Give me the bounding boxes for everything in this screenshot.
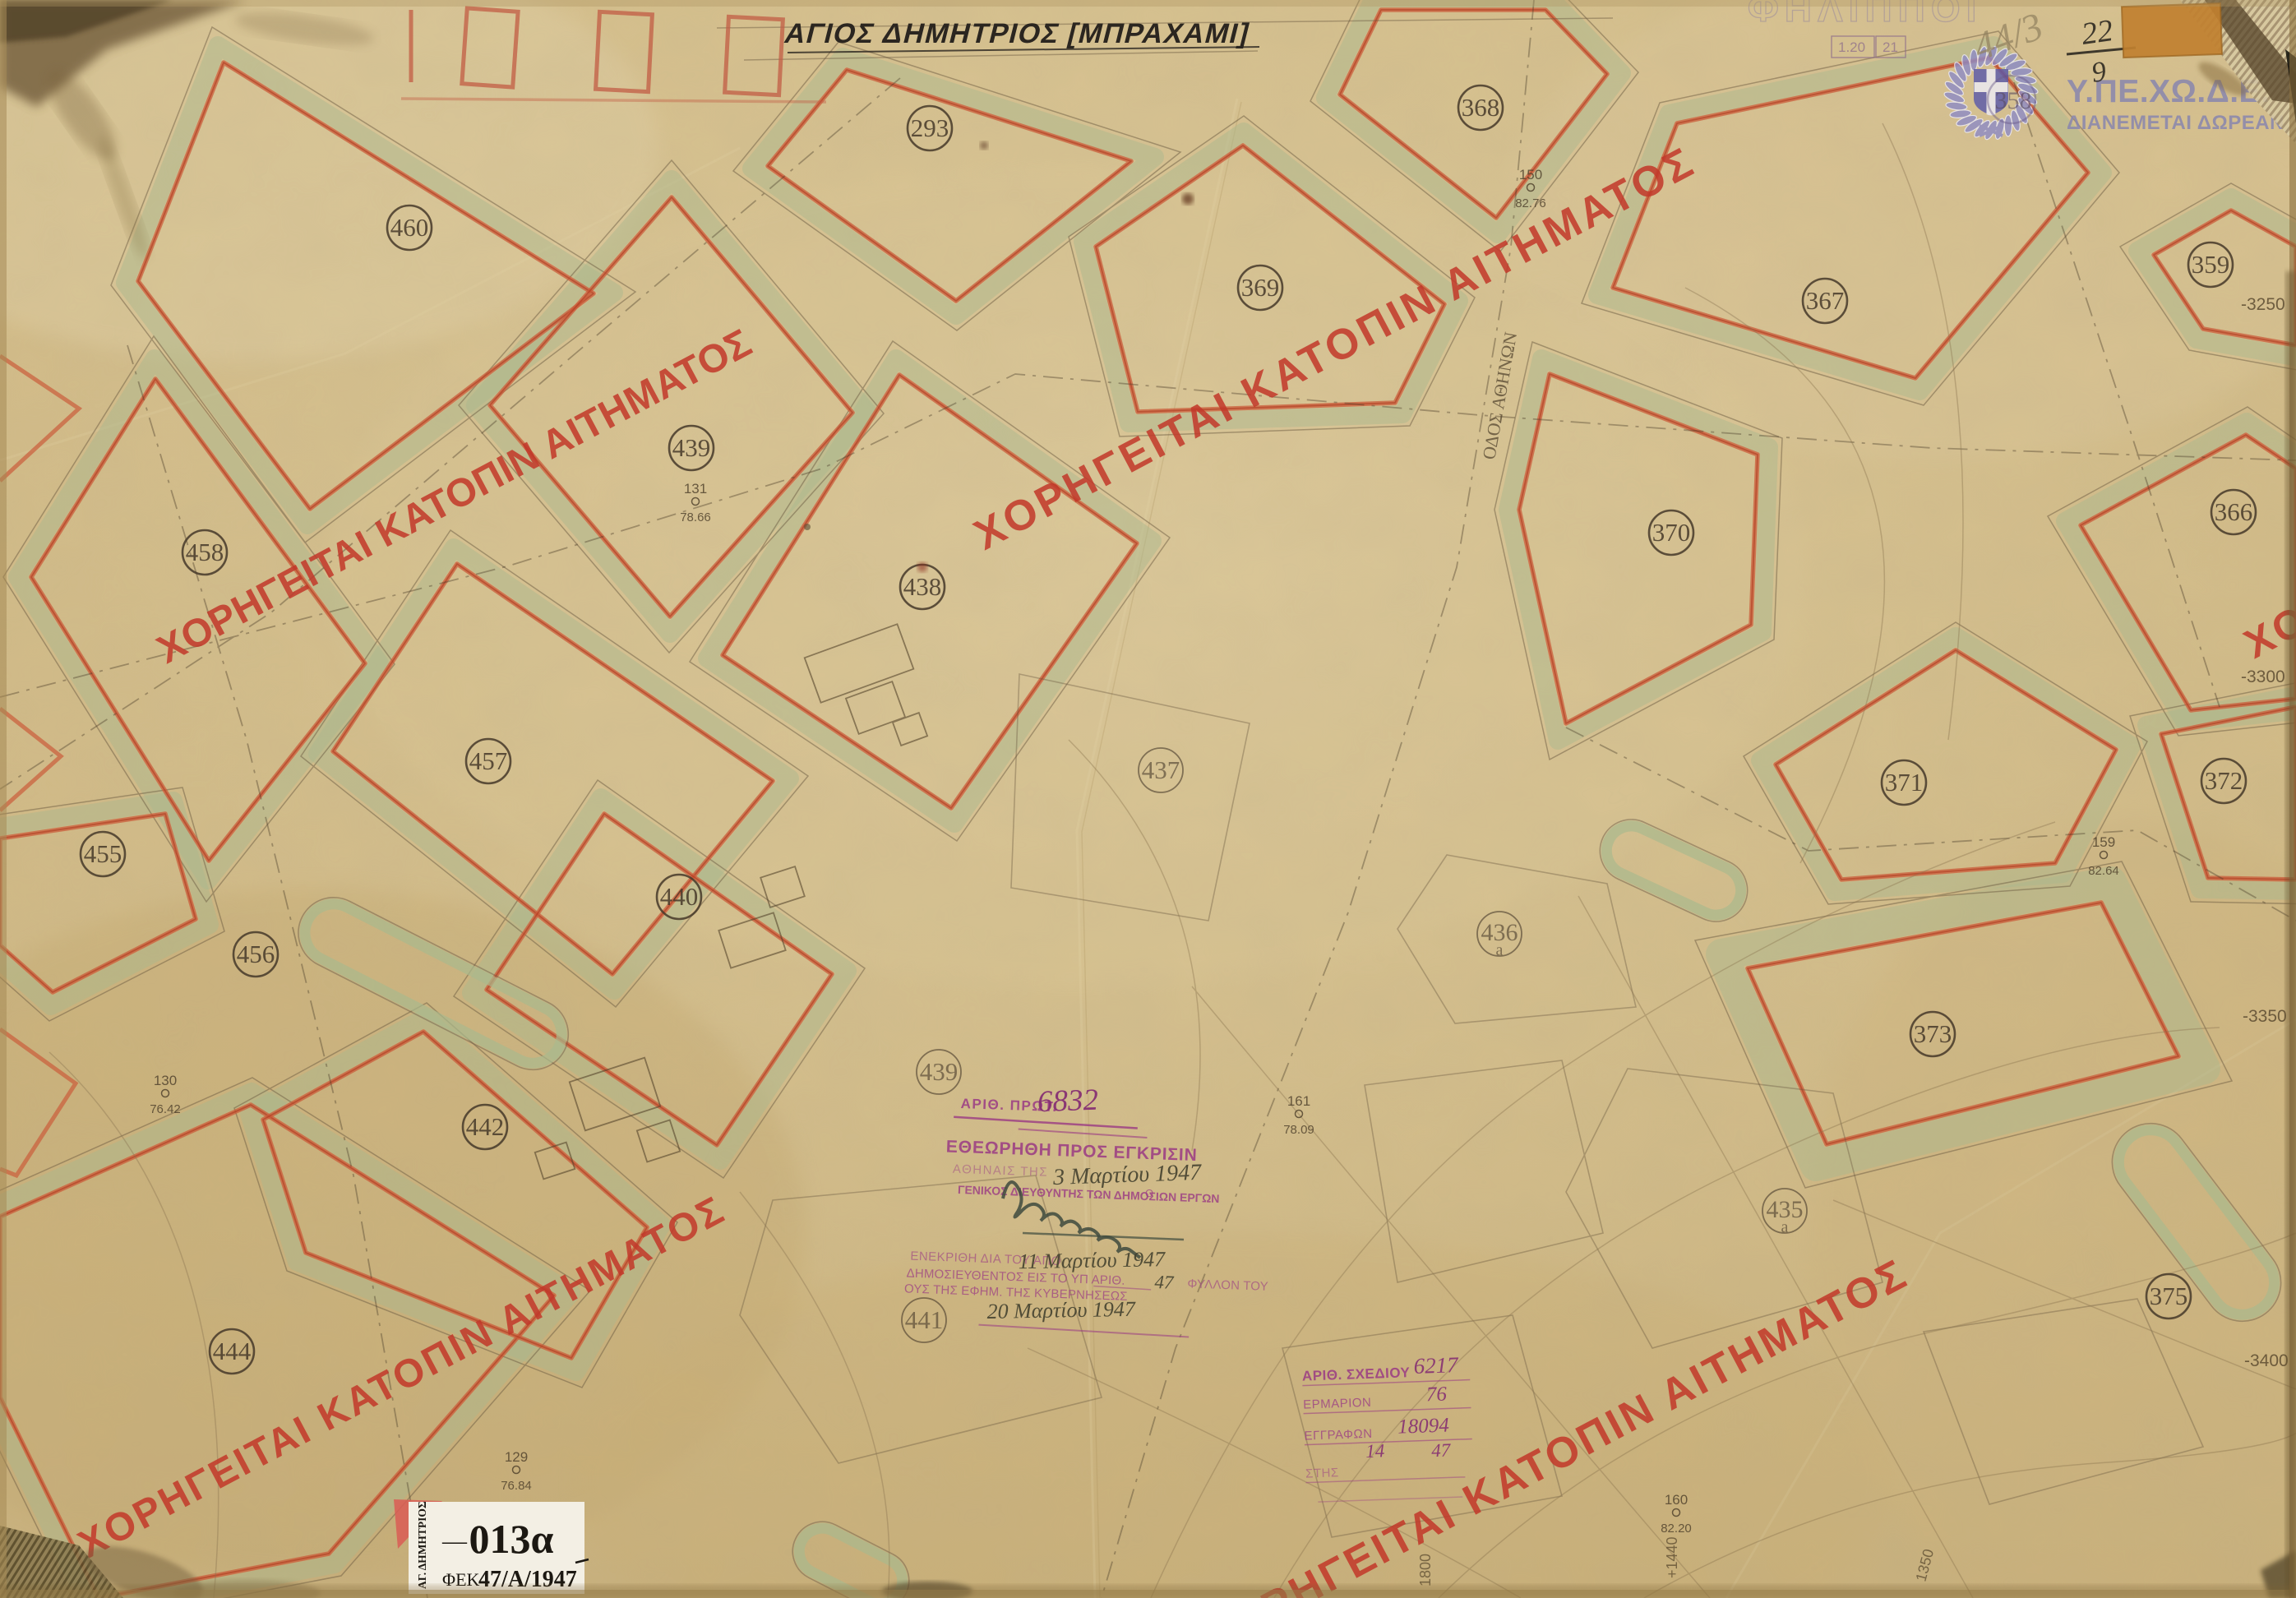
svg-text:78.66: 78.66 xyxy=(680,510,711,524)
svg-text:161: 161 xyxy=(1287,1093,1310,1109)
svg-text:358: 358 xyxy=(1995,87,2032,114)
svg-text:373: 373 xyxy=(1914,1019,1952,1048)
svg-text:437: 437 xyxy=(1142,755,1180,784)
svg-text:131: 131 xyxy=(684,481,707,496)
svg-text:ΔΙΑΝΕΜΕΤΑΙ ΔΩΡΕΑΝ: ΔΙΑΝΕΜΕΤΑΙ ΔΩΡΕΑΝ xyxy=(2067,112,2284,134)
svg-text:370: 370 xyxy=(1652,518,1691,547)
svg-text:ΕΓΓΡΑΦΩΝ: ΕΓΓΡΑΦΩΝ xyxy=(1304,1427,1373,1443)
svg-text:441: 441 xyxy=(905,1305,944,1334)
svg-text:a: a xyxy=(1781,1218,1789,1236)
svg-text:ΑΓ. ΔΗΜΗΤΡΙΟΣ: ΑΓ. ΔΗΜΗΤΡΙΟΣ xyxy=(416,1501,428,1589)
svg-text:-3250: -3250 xyxy=(2241,295,2285,314)
svg-text:371: 371 xyxy=(1885,768,1924,797)
svg-text:14: 14 xyxy=(1365,1440,1385,1462)
svg-text:013α: 013α xyxy=(469,1516,554,1562)
svg-text:21: 21 xyxy=(1883,39,1898,55)
svg-text:1800: 1800 xyxy=(1417,1554,1434,1586)
svg-text:—: — xyxy=(441,1527,468,1554)
svg-text:372: 372 xyxy=(2205,766,2243,795)
svg-text:82.20: 82.20 xyxy=(1661,1522,1692,1536)
svg-text:1.20: 1.20 xyxy=(1838,39,1865,55)
svg-text:ΣΤΗΣ: ΣΤΗΣ xyxy=(1305,1466,1339,1480)
svg-text:368: 368 xyxy=(1462,93,1500,122)
svg-text:a: a xyxy=(1496,941,1504,959)
svg-text:460: 460 xyxy=(390,213,429,242)
svg-text:47: 47 xyxy=(1431,1439,1452,1461)
svg-text:20 Μαρτίου 1947: 20 Μαρτίου 1947 xyxy=(986,1297,1136,1323)
svg-text:82.76: 82.76 xyxy=(1515,196,1546,210)
svg-text:18094: 18094 xyxy=(1397,1414,1449,1438)
svg-text:ΕΡΜΑΡΙΟΝ: ΕΡΜΑΡΙΟΝ xyxy=(1303,1396,1372,1412)
svg-text:438: 438 xyxy=(903,572,942,601)
svg-text:ΑΓΙΟΣ ΔΗΜΗΤΡΙΟΣ [ΜΠΡΑΧΑΜΙ]: ΑΓΙΟΣ ΔΗΜΗΤΡΙΟΣ [ΜΠΡΑΧΑΜΙ] xyxy=(782,18,1254,48)
svg-text:-3400: -3400 xyxy=(2244,1351,2289,1370)
svg-text:444: 444 xyxy=(213,1337,252,1365)
svg-text:369: 369 xyxy=(1241,273,1280,302)
svg-text:-3350: -3350 xyxy=(2243,1007,2287,1026)
svg-text:439: 439 xyxy=(920,1057,959,1086)
svg-text:-3300: -3300 xyxy=(2241,667,2285,686)
svg-text:458: 458 xyxy=(186,538,224,566)
svg-text:293: 293 xyxy=(911,113,949,142)
svg-text:442: 442 xyxy=(466,1112,505,1141)
svg-text:6832: 6832 xyxy=(1037,1083,1098,1120)
svg-text:78.09: 78.09 xyxy=(1283,1123,1314,1137)
svg-text:375: 375 xyxy=(2150,1282,2188,1310)
svg-text:11 Μαρτίου 1947: 11 Μαρτίου 1947 xyxy=(1019,1247,1166,1273)
svg-text:440: 440 xyxy=(660,882,699,911)
svg-text:367: 367 xyxy=(1806,286,1845,315)
svg-text:366: 366 xyxy=(2215,497,2253,526)
svg-text:129: 129 xyxy=(505,1449,528,1465)
svg-text:47: 47 xyxy=(1154,1272,1175,1293)
svg-text:159: 159 xyxy=(2092,834,2115,850)
svg-text:3 Μαρτίου 1947: 3 Μαρτίου 1947 xyxy=(1052,1160,1203,1190)
svg-text:+1440: +1440 xyxy=(1664,1536,1680,1578)
svg-text:82.64: 82.64 xyxy=(2088,864,2119,878)
svg-text:457: 457 xyxy=(469,746,508,775)
svg-text:76.84: 76.84 xyxy=(501,1479,532,1493)
svg-text:ΦΥΛΛΟΝ ΤΟΥ: ΦΥΛΛΟΝ ΤΟΥ xyxy=(1187,1277,1268,1293)
svg-text:150: 150 xyxy=(1519,167,1542,182)
svg-text:456: 456 xyxy=(237,940,275,968)
svg-text:76: 76 xyxy=(1425,1383,1447,1406)
svg-text:359: 359 xyxy=(2192,250,2230,279)
svg-text:130: 130 xyxy=(154,1073,177,1088)
svg-text:455: 455 xyxy=(84,839,122,868)
svg-text:76.42: 76.42 xyxy=(150,1102,181,1116)
svg-text:160: 160 xyxy=(1665,1492,1688,1508)
svg-text:22: 22 xyxy=(2079,13,2114,52)
svg-text:6217: 6217 xyxy=(1413,1352,1460,1379)
svg-text:439: 439 xyxy=(672,433,711,462)
